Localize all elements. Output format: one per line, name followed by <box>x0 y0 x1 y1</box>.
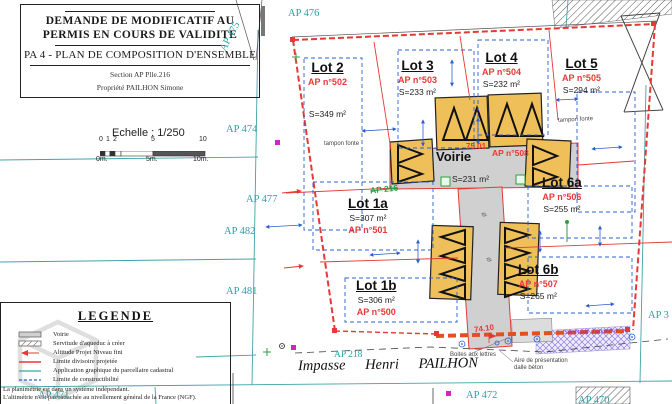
parcellaire-line-icon <box>15 368 45 374</box>
lot-4-labels: Lot 4 AP n°504 S=232 m² <box>482 50 521 89</box>
lot-6b-labels: Lot 6b AP n°507 S=265 m² <box>518 262 559 301</box>
scale-tick-m: 0m. <box>96 156 108 163</box>
lot-area: S=349 m² <box>309 109 346 119</box>
lot-name: Lot 1b <box>356 278 397 293</box>
title-rule <box>30 65 250 66</box>
scale-tick: 1 <box>106 136 110 143</box>
scale-tick: 0 <box>99 136 103 143</box>
title-rule <box>55 45 225 46</box>
lot-name: Lot 6a <box>542 175 582 190</box>
scale-tick: 2 <box>113 136 117 143</box>
constructibilite-line-icon <box>15 377 45 383</box>
lot-5-labels: Lot 5 AP n°505 S=294 m² <box>562 56 601 95</box>
title-rule <box>65 11 215 12</box>
lot-ap-number: AP n°507 <box>519 279 558 289</box>
lot-ap-number: AP n°505 <box>562 73 601 83</box>
aire-presentation-note2: dalle béton <box>514 365 543 371</box>
boites-aux-lettres-note: Boites aux lettres <box>450 352 496 358</box>
tampon-fonte-note: tampon fonte <box>324 141 359 147</box>
lot-area: S=294 m² <box>563 85 600 95</box>
lot-area: S=307 m² <box>349 213 386 223</box>
limite-divisoire-line-icon <box>15 359 45 365</box>
document-title-line1: DEMANDE DE MODIFICATIF AU <box>23 14 257 28</box>
parcel-label-ap471: AP 471 <box>38 390 69 401</box>
scale-tick: 5 <box>151 136 155 143</box>
document-subtitle: PA 4 - PLAN DE COMPOSITION D'ENSEMBLE <box>23 49 257 63</box>
voirie-label: Voirie <box>436 149 471 164</box>
lot-area: S=233 m² <box>399 87 436 97</box>
voirie-elevation: 75.01 <box>466 142 486 151</box>
legend-item-constructibilite: Limite de constructibilité <box>15 375 230 384</box>
lot-name: Lot 6b <box>518 262 559 277</box>
legend-item-limite-divisoire: Limite divisoire projetée <box>15 357 230 366</box>
voirie-area: S=231 m² <box>452 174 489 184</box>
voirie-ap-number: AP n°508 <box>492 148 529 158</box>
parcel-label-ap3: AP 3 <box>648 310 669 321</box>
lot-1b-labels: Lot 1b S=306 m² AP n°500 <box>356 278 397 317</box>
lot-ap-number: AP n°506 <box>542 192 581 202</box>
site-plan-document: DEMANDE DE MODIFICATIF AU PERMIS EN COUR… <box>0 0 672 404</box>
lot-ap-number: AP n°500 <box>357 307 396 317</box>
section-reference: Section AP Plle.216 <box>23 70 257 79</box>
parcel-label-ap474: AP 474 <box>226 124 257 135</box>
lot-area: S=232 m² <box>483 79 520 89</box>
legend-title: LEGENDE <box>1 309 230 324</box>
scale-tick: 10 <box>199 136 207 143</box>
scale-tick-m: 5m. <box>146 156 158 163</box>
lot-3-labels: Lot 3 AP n°503 S=233 m² <box>398 58 437 97</box>
owner-name: Propriété PAILHON Simone <box>23 83 257 92</box>
parcel-label-ap481: AP 481 <box>226 286 257 297</box>
aire-presentation-note: Aire de présentation <box>514 358 568 364</box>
lot-name: Lot 4 <box>485 50 517 65</box>
lot-area: S=306 m² <box>358 295 395 305</box>
lot-ap-number: AP n°502 <box>308 77 347 87</box>
lot-name: Lot 5 <box>565 56 597 71</box>
lot-name: Lot 3 <box>401 58 433 73</box>
parcel-label-ap482: AP 482 <box>224 226 255 237</box>
scale-label: Echelle : 1/250 <box>112 127 185 139</box>
parcel-label-ap470: AP 470 <box>578 395 609 404</box>
lot-ap-number: AP n°504 <box>482 67 521 77</box>
lot-ap-number: AP n°501 <box>348 225 387 235</box>
lot-ap-number: AP n°503 <box>398 75 437 85</box>
legend-item-altitude: Altitude Projet Niveau fini <box>15 348 230 357</box>
legend-panel: LEGENDE Voirie Servitude d'aqueduc à cré… <box>0 302 231 404</box>
altitude-mark-icon <box>15 349 45 357</box>
servitude-swatch-icon <box>15 340 45 347</box>
lot-1a-labels: Lot 1a S=307 m² AP n°501 <box>348 196 388 235</box>
scale-tick-m: 10m. <box>193 156 209 163</box>
lot-name: Lot 1a <box>348 196 388 211</box>
lot-6a-labels: Lot 6a AP n°506 S=255 m² <box>542 175 582 214</box>
lot-area: S=265 m² <box>520 291 557 301</box>
legend-item-servitude: Servitude d'aqueduc à créer <box>15 339 230 348</box>
lot-area: S=255 m² <box>543 204 580 214</box>
lot-name: Lot 2 <box>311 60 343 75</box>
parcel-label-ap476: AP 476 <box>288 8 319 19</box>
parcel-label-ap477: AP 477 <box>246 194 277 205</box>
parcel-label-ap472: AP 472 <box>466 390 497 401</box>
legend-item-voirie: Voirie <box>15 330 230 339</box>
voirie-swatch-icon <box>15 331 45 338</box>
lot-2-labels: Lot 2 AP n°502 S=349 m² <box>308 60 347 119</box>
legend-item-parcellaire: Application graphique du parcellaire cad… <box>15 366 230 375</box>
